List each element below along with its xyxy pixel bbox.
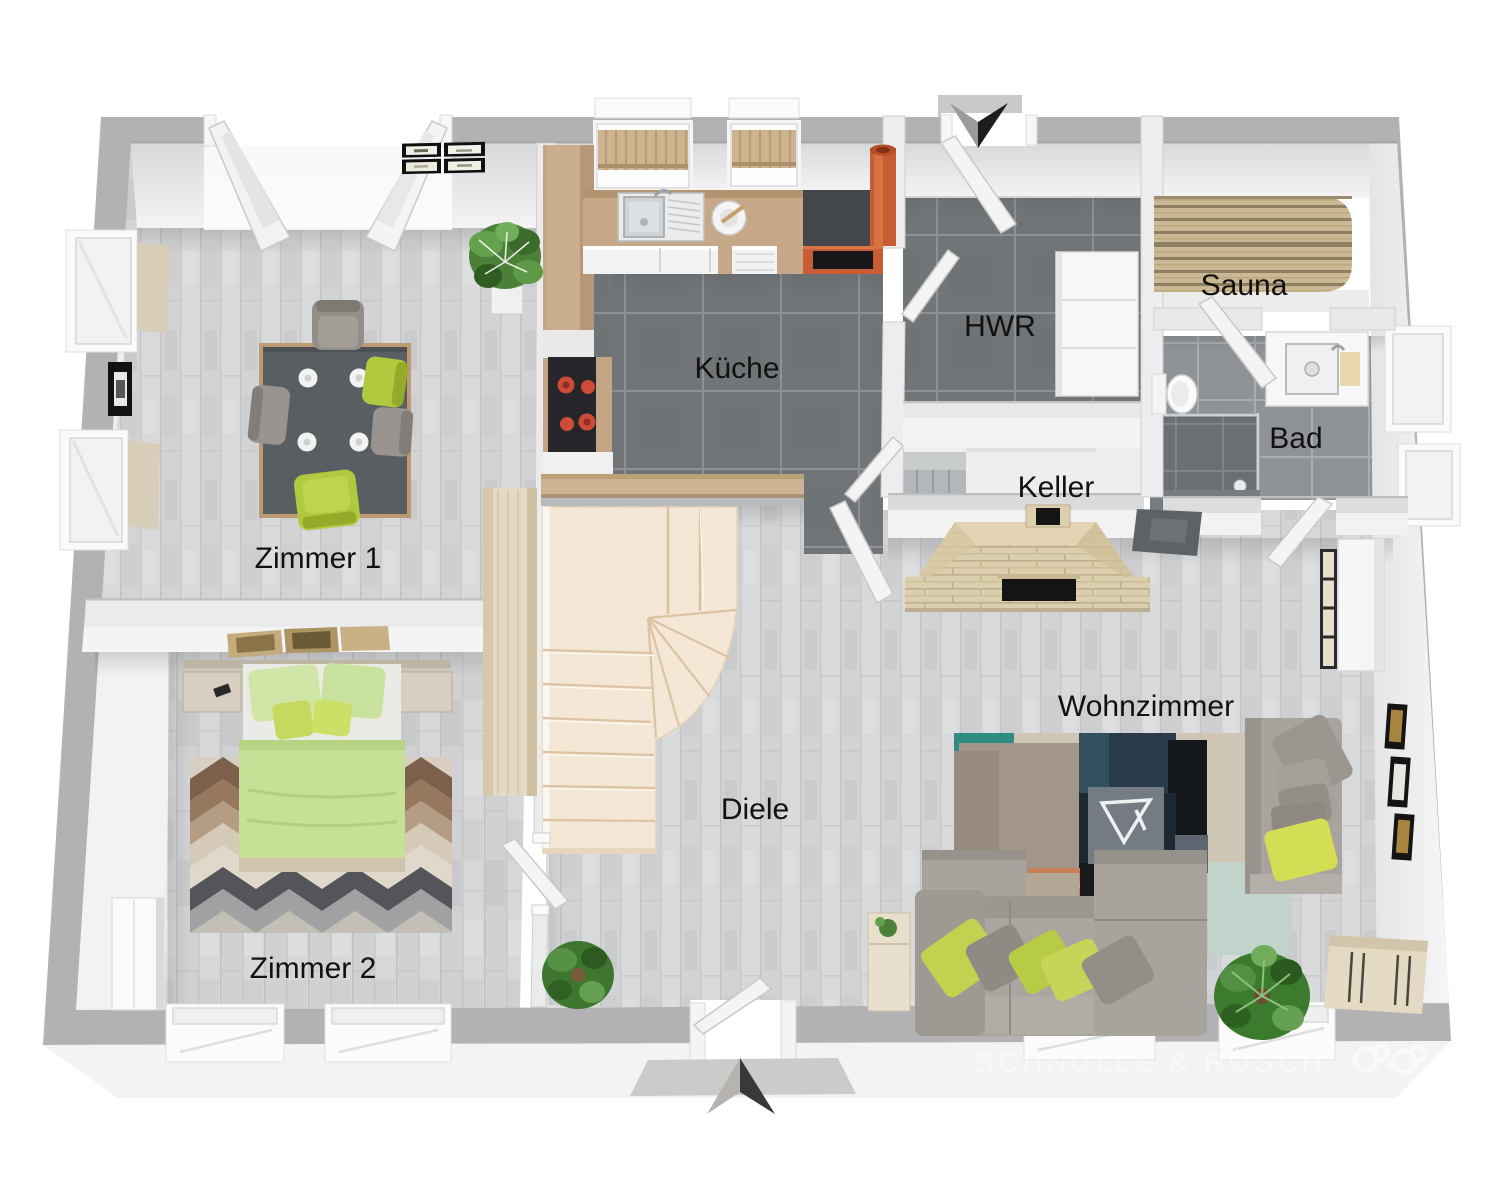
svg-text:Küche: Küche [694,352,779,385]
svg-text:Keller: Keller [1018,471,1095,504]
svg-text:Sauna: Sauna [1201,269,1288,302]
svg-text:Zimmer 2: Zimmer 2 [250,952,377,985]
svg-text:HWR: HWR [964,310,1036,343]
svg-text:Diele: Diele [721,793,789,826]
svg-text:Wohnzimmer: Wohnzimmer [1058,690,1234,723]
svg-text:SCHNÜLLE & RÖSCH: SCHNÜLLE & RÖSCH [975,1047,1327,1078]
svg-text:Bad: Bad [1269,422,1322,455]
svg-text:Zimmer 1: Zimmer 1 [255,542,382,575]
